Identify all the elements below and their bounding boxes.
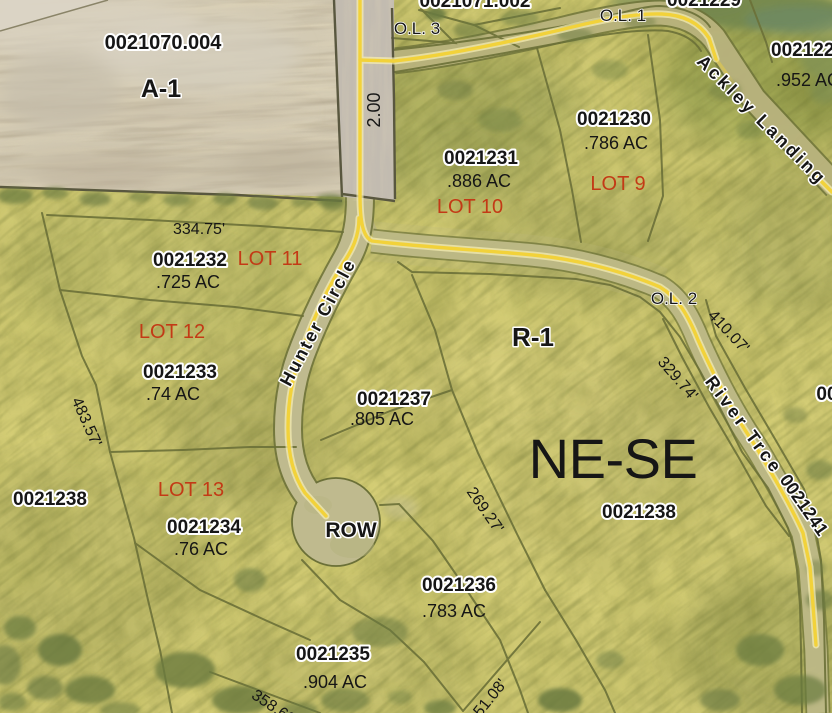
svg-text:ROW: ROW [325,519,377,542]
svg-text:0021237: 0021237 [357,389,431,410]
svg-text:0021230: 0021230 [577,109,651,130]
svg-text:O.L. 1: O.L. 1 [600,6,646,25]
svg-text:LOT 13: LOT 13 [158,479,224,501]
svg-text:334.75': 334.75' [173,221,225,238]
svg-text:.805 AC: .805 AC [350,409,414,429]
svg-text:O.L. 3: O.L. 3 [394,19,440,38]
svg-text:.74 AC: .74 AC [146,384,200,404]
svg-text:O.L. 2: O.L. 2 [651,289,697,308]
svg-text:.725 AC: .725 AC [156,272,220,292]
svg-text:A-1: A-1 [141,75,181,103]
svg-text:LOT 11: LOT 11 [238,248,303,270]
svg-text:0021233: 0021233 [143,362,217,383]
svg-text:0021229: 0021229 [667,0,741,11]
svg-text:0021231: 0021231 [444,148,518,169]
svg-text:0021070.004: 0021070.004 [105,32,223,54]
svg-text:R-1: R-1 [512,322,554,352]
svg-text:2.00: 2.00 [364,92,384,127]
svg-text:0021236: 0021236 [422,575,496,596]
svg-text:0021238: 0021238 [602,502,676,523]
svg-text:.786 AC: .786 AC [584,133,648,153]
svg-text:0021234: 0021234 [167,517,241,538]
svg-text:LOT 10: LOT 10 [437,196,503,218]
svg-text:NE-SE: NE-SE [529,427,698,490]
svg-text:0021232: 0021232 [153,250,227,271]
svg-text:.952 AC: .952 AC [776,70,832,90]
svg-text:.886 AC: .886 AC [447,171,511,191]
svg-text:LOT 12: LOT 12 [139,321,205,343]
svg-text:0021238: 0021238 [13,489,87,510]
svg-text:.904 AC: .904 AC [303,672,367,692]
svg-text:0021228: 0021228 [771,40,832,61]
svg-text:.783 AC: .783 AC [422,601,486,621]
svg-text:.76 AC: .76 AC [174,539,228,559]
svg-text:0021071.002: 0021071.002 [420,0,531,12]
svg-text:LOT 9: LOT 9 [590,173,645,195]
svg-text:00: 00 [816,384,832,405]
svg-text:0021235: 0021235 [296,644,370,665]
